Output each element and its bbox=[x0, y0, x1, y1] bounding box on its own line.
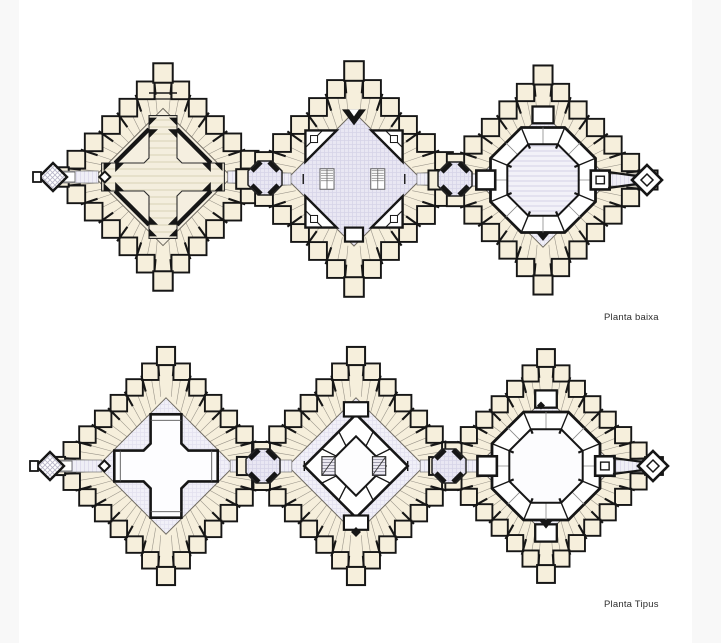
junction-node bbox=[248, 161, 282, 195]
junction-node bbox=[438, 162, 472, 196]
label-planta-tipus: Planta Tipus bbox=[604, 599, 659, 610]
label-planta-baixa: Planta baixa bbox=[604, 312, 659, 323]
junction-node bbox=[246, 449, 280, 483]
junction-node bbox=[432, 449, 466, 483]
planta-baixa-row bbox=[33, 61, 662, 297]
architectural-drawing-page: Planta baixa Planta Tipus bbox=[0, 0, 721, 643]
planta-tipus-row bbox=[30, 347, 668, 585]
